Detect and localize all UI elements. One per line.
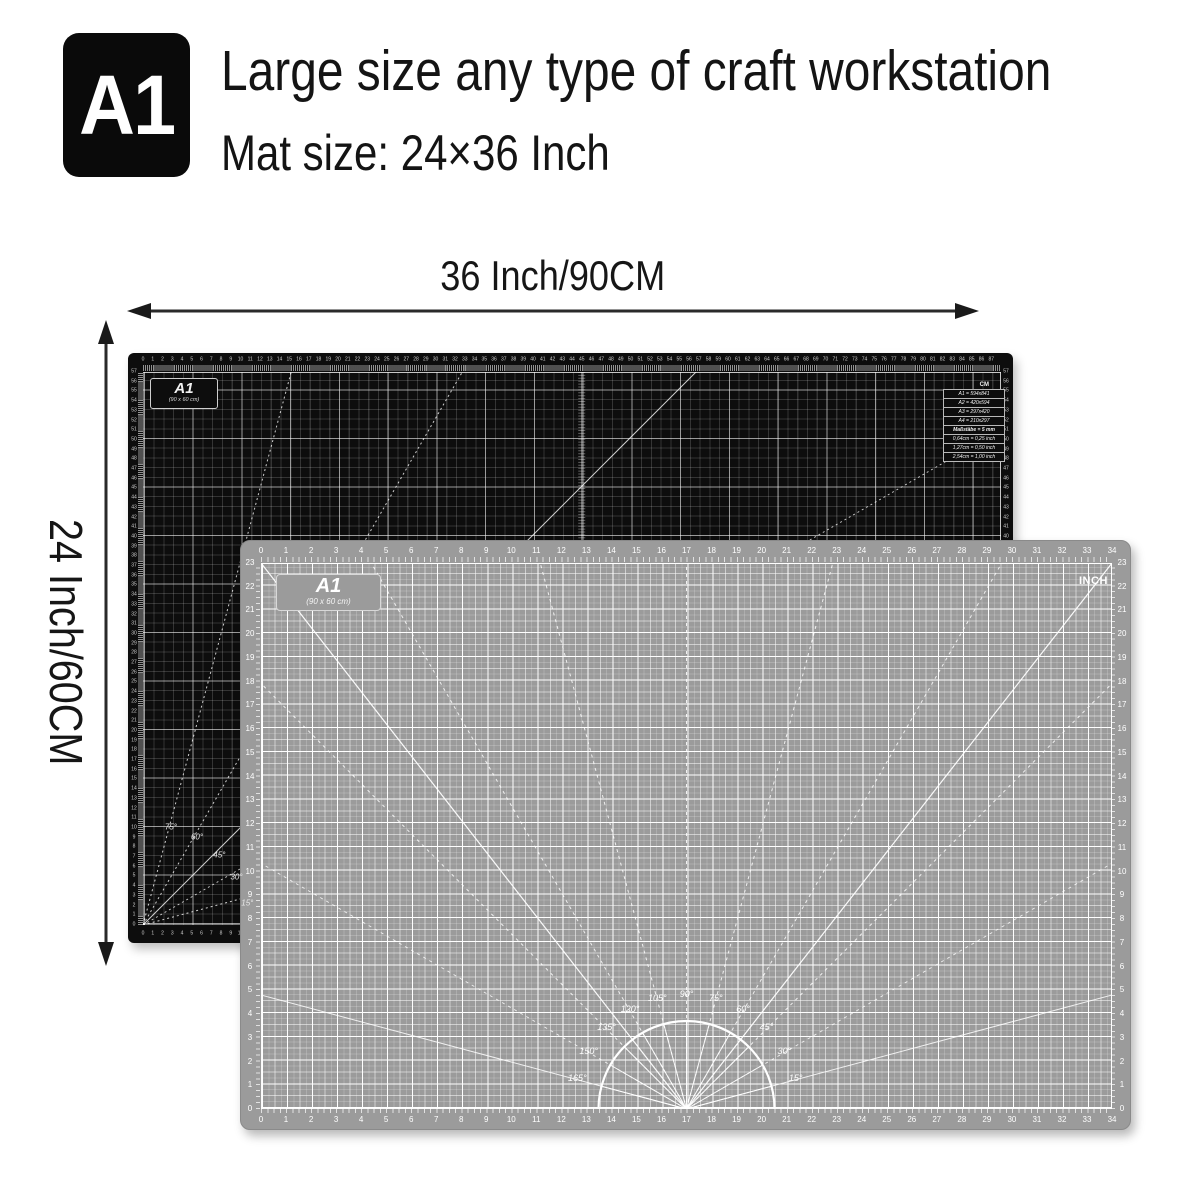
black-mat-top-ruler-number: 44	[569, 358, 575, 363]
gray-mat-right-ruler-number: 15	[1118, 749, 1127, 757]
black-mat-top-ruler-number: 27	[403, 358, 409, 363]
black-mat-top-ruler-number: 62	[745, 358, 751, 363]
black-mat-left-ruler-number: 27	[131, 661, 137, 666]
gray-mat-left-ruler-number: 11	[246, 844, 254, 852]
black-mat-top-ruler-number: 81	[930, 358, 936, 363]
gray-mat-right-ruler-number: 19	[1118, 654, 1127, 662]
gray-mat-left-ruler-number: 1	[248, 1081, 252, 1089]
black-mat-right-ruler-number: 40	[1003, 534, 1009, 539]
product-image: A1 Large size any type of craft workstat…	[0, 0, 1200, 1200]
black-mat-left-ruler-number: 42	[131, 515, 137, 520]
gray-mat-angle-label: 75°	[709, 993, 723, 1003]
black-mat-left-ruler-number: 9	[133, 835, 136, 840]
black-mat-left-ruler-number: 17	[131, 758, 137, 763]
black-mat-top-ruler-number: 5	[190, 358, 193, 363]
black-mat-top-ruler-number: 30	[433, 358, 439, 363]
gray-mat-top-ruler-number: 5	[384, 547, 388, 555]
gray-mat-left-ruler-number: 0	[248, 1105, 252, 1113]
black-mat-left-ruler-number: 28	[131, 651, 137, 656]
black-mat-left-ruler-number: 36	[131, 573, 137, 578]
gray-mat-top-ruler-number: 7	[434, 547, 438, 555]
black-mat-left-ruler-number: 54	[131, 399, 137, 404]
black-mat-bottom-ruler-number: 8	[220, 932, 223, 937]
gray-mat-top-ruler-number: 6	[409, 547, 413, 555]
gray-mat-bottom-ruler-number: 12	[557, 1116, 566, 1124]
gray-mat-right-ruler-number: 14	[1118, 773, 1127, 781]
black-mat-top-ruler-number: 73	[852, 358, 858, 363]
black-mat-top-ruler-number: 80	[920, 358, 926, 363]
gray-mat-left-ruler-number: 23	[246, 559, 255, 567]
black-mat-left-ruler-number: 53	[131, 408, 137, 413]
black-mat-top-ruler-number: 20	[335, 358, 341, 363]
black-mat-left-ruler-number: 24	[131, 690, 137, 695]
black-mat-top-ruler-number: 58	[706, 358, 712, 363]
black-mat-left-ruler-number: 13	[131, 796, 137, 801]
gray-mat-bottom-ruler-number: 19	[732, 1116, 741, 1124]
black-mat-top-ruler-number: 18	[316, 358, 322, 363]
gray-mat-left-ruler-number: 5	[248, 986, 252, 994]
gray-mat-left-ruler-number: 3	[248, 1034, 252, 1042]
gray-mat-bottom-ruler-number: 20	[757, 1116, 766, 1124]
black-mat-bottom-ruler-number: 9	[229, 932, 232, 937]
gray-mat-angle-label: 120°	[621, 1004, 640, 1014]
black-mat-top-ruler-number: 67	[793, 358, 799, 363]
gray-mat-bottom-ruler-number: 22	[807, 1116, 816, 1124]
gray-mat-bottom-ruler-number: 21	[782, 1116, 791, 1124]
black-mat-left-ruler-number: 2	[133, 903, 136, 908]
page-subtitle: Mat size: 24×36 Inch	[221, 124, 610, 182]
gray-mat-right-ruler-number: 6	[1120, 963, 1124, 971]
black-mat-top-ruler-number: 68	[803, 358, 809, 363]
gray-mat-bottom-ruler-number: 33	[1083, 1116, 1092, 1124]
black-mat-left-ruler-number: 50	[131, 437, 137, 442]
black-mat-top-ruler-number: 2	[161, 358, 164, 363]
black-mat-top-ruler-number: 40	[530, 358, 536, 363]
black-mat-top-ruler-number: 33	[462, 358, 468, 363]
gray-mat-top-ruler-number: 15	[632, 547, 641, 555]
black-mat-top-ruler-number: 28	[413, 358, 419, 363]
black-mat-top-ruler-number: 53	[657, 358, 663, 363]
black-mat-left-ruler-number: 22	[131, 709, 137, 714]
black-mat-bottom-ruler-number: 5	[190, 932, 193, 937]
gray-mat-bottom-ruler-number: 8	[459, 1116, 463, 1124]
black-mat-left-ruler-number: 6	[133, 864, 136, 869]
black-mat-left-ruler-number: 26	[131, 670, 137, 675]
black-mat-left-ruler-number: 51	[131, 428, 137, 433]
black-mat-top-ruler-number: 29	[423, 358, 429, 363]
black-mat-top-ruler-number: 31	[442, 358, 448, 363]
black-mat-top-ruler-number: 16	[296, 358, 302, 363]
black-mat-top-ruler-number: 69	[813, 358, 819, 363]
gray-mat-angle-label: 150°	[579, 1046, 598, 1056]
black-mat-top-ruler-number: 74	[862, 358, 868, 363]
black-mat-top-ruler-number: 57	[696, 358, 702, 363]
gray-mat-right-ruler-number: 18	[1118, 678, 1127, 686]
gray-mat-left-ruler-number: 18	[246, 678, 255, 686]
black-mat-top-ruler-number: 59	[715, 358, 721, 363]
black-mat-top-ruler-number: 54	[667, 358, 673, 363]
page-title: Large size any type of craft workstation	[221, 38, 1051, 104]
black-mat-top-ruler-number: 12	[257, 358, 263, 363]
black-mat-top-ruler-number: 4	[181, 358, 184, 363]
gray-mat-bottom-ruler-number: 13	[582, 1116, 591, 1124]
gray-mat-top-ruler-number: 31	[1032, 547, 1041, 555]
black-mat-top-ruler-number: 39	[520, 358, 526, 363]
black-mat-size-label: A1 (90 x 60 cm)	[150, 378, 218, 409]
black-mat-top-ruler-number: 37	[501, 358, 507, 363]
black-mat-left-ruler-number: 21	[131, 719, 137, 724]
gray-mat-bottom-ruler-number: 30	[1007, 1116, 1016, 1124]
black-mat-left-ruler-number: 45	[131, 486, 137, 491]
black-mat-left-ruler-number: 10	[131, 825, 137, 830]
black-mat-left-ruler-number: 33	[131, 602, 137, 607]
black-mat-left-ruler-number: 5	[133, 874, 136, 879]
height-dimension-label: 24 Inch/60CM	[30, 322, 102, 963]
black-mat-bottom-ruler-number: 1	[151, 932, 154, 937]
gray-mat-top-ruler-number: 32	[1058, 547, 1067, 555]
black-mat-top-ruler-number: 77	[891, 358, 897, 363]
black-mat-left-ruler-number: 25	[131, 680, 137, 685]
black-mat-left-ruler-number: 18	[131, 748, 137, 753]
gray-mat-right-ruler-number: 4	[1120, 1010, 1124, 1018]
gray-mat-bottom-ruler-number: 23	[832, 1116, 841, 1124]
gray-mat-bottom-ruler-number: 26	[907, 1116, 916, 1124]
black-mat-top-ruler-number: 87	[988, 358, 994, 363]
black-mat-angle-label: 45°	[213, 850, 225, 859]
black-mat-top-ruler-number: 42	[550, 358, 556, 363]
gray-mat-size-label: A1 (90 x 60 cm)	[276, 574, 381, 611]
gray-mat-bottom-ruler-number: 10	[507, 1116, 516, 1124]
gray-mat-top-ruler-number: 29	[982, 547, 991, 555]
gray-mat-left-ruler-number: 13	[246, 796, 255, 804]
gray-mat-top-ruler-number: 12	[557, 547, 566, 555]
black-mat-top-ruler-number: 61	[735, 358, 741, 363]
black-mat-top-ruler-number: 13	[267, 358, 273, 363]
width-dimension-label: 36 Inch/90CM	[131, 252, 975, 300]
gray-mat-right-ruler-number: 16	[1118, 725, 1127, 733]
black-mat-left-ruler-number: 47	[131, 467, 137, 472]
gray-mat-top-ruler-number: 0	[259, 547, 263, 555]
gray-mat-right-ruler-number: 0	[1120, 1105, 1124, 1113]
gray-mat-left-ruler-number: 6	[248, 963, 252, 971]
gray-mat-bottom-ruler-number: 32	[1058, 1116, 1067, 1124]
black-mat-top-ruler-number: 60	[725, 358, 731, 363]
black-mat-right-ruler-number: 56	[1003, 379, 1009, 384]
gray-mat-bottom-ruler-number: 25	[882, 1116, 891, 1124]
gray-mat-right-ruler-number: 2	[1120, 1058, 1124, 1066]
black-mat-top-ruler-number: 64	[764, 358, 770, 363]
black-mat-angle-label: 60°	[191, 833, 203, 842]
black-mat-left-ruler-number: 57	[131, 370, 137, 375]
gray-mat-angle-label: 105°	[648, 993, 667, 1003]
black-mat-left-ruler-number: 35	[131, 583, 137, 588]
black-mat-left-ruler-number: 4	[133, 884, 136, 889]
black-mat-top-ruler-number: 0	[142, 358, 145, 363]
black-mat-top-ruler-number: 65	[774, 358, 780, 363]
black-mat-bottom-ruler-number: 2	[161, 932, 164, 937]
gray-mat-right-ruler-number: 8	[1120, 915, 1124, 923]
black-mat-top-ruler-number: 48	[608, 358, 614, 363]
black-mat-left-ruler-number: 56	[131, 379, 137, 384]
black-mat-left-ruler-number: 0	[133, 922, 136, 927]
black-mat-top-ruler-number: 19	[325, 358, 331, 363]
black-mat-top-ruler-number: 79	[910, 358, 916, 363]
black-mat-top-ruler-number: 85	[969, 358, 975, 363]
gray-mat-bottom-ruler-number: 24	[857, 1116, 866, 1124]
gray-mat-angle-label: 135°	[597, 1022, 616, 1032]
gray-mat-right-ruler-number: 5	[1120, 986, 1124, 994]
gray-mat-right-ruler-number: 17	[1118, 701, 1127, 709]
black-mat-top-ruler-number: 51	[637, 358, 643, 363]
gray-mat-top-ruler-number: 19	[732, 547, 741, 555]
gray-mat-top-ruler-number: 30	[1007, 547, 1016, 555]
gray-mat-bottom-ruler-number: 2	[309, 1116, 313, 1124]
gray-mat-bottom-ruler-number: 16	[657, 1116, 666, 1124]
gray-mat-bottom-ruler-number: 27	[932, 1116, 941, 1124]
black-mat-left-ruler-number: 31	[131, 622, 137, 627]
black-mat-top-ruler-number: 49	[618, 358, 624, 363]
gray-mat-top-ruler-number: 24	[857, 547, 866, 555]
black-mat-top-ruler-number: 47	[598, 358, 604, 363]
black-mat-right-ruler-number: 57	[1003, 370, 1009, 375]
black-mat-left-ruler-number: 41	[131, 525, 137, 530]
gray-mat-angle-label: 15°	[789, 1073, 803, 1083]
black-mat-top-ruler-number: 3	[171, 358, 174, 363]
black-mat-top-ruler-number: 10	[238, 358, 244, 363]
gray-mat-left-ruler-number: 10	[246, 868, 255, 876]
black-mat-top-ruler-number: 56	[686, 358, 692, 363]
gray-mat-top-ruler-number: 8	[459, 547, 463, 555]
black-mat-left-ruler-number: 23	[131, 699, 137, 704]
gray-mat-left-ruler-number: 20	[246, 630, 255, 638]
gray-mat-left-ruler-number: 12	[246, 820, 255, 828]
black-mat-left-ruler-number: 29	[131, 641, 137, 646]
gray-mat-angle-label: 90°	[680, 989, 694, 999]
black-mat-right-ruler-number: 45	[1003, 486, 1009, 491]
black-mat-angle-label: 15°	[241, 899, 253, 908]
black-mat-top-ruler-number: 23	[364, 358, 370, 363]
gray-mat-top-ruler-number: 26	[907, 547, 916, 555]
black-mat-left-ruler-number: 40	[131, 534, 137, 539]
black-mat-angle-label: 75°	[165, 822, 177, 831]
black-mat-top-ruler-number: 26	[394, 358, 400, 363]
gray-mat-bottom-ruler-number: 1	[284, 1116, 288, 1124]
gray-mat-top-ruler-number: 16	[657, 547, 666, 555]
black-mat-top-ruler-number: 55	[676, 358, 682, 363]
black-mat-left-ruler-number: 1	[133, 913, 136, 918]
gray-mat-bottom-ruler-number: 6	[409, 1116, 413, 1124]
black-mat-left-ruler-number: 32	[131, 612, 137, 617]
black-mat-top-ruler-number: 41	[540, 358, 546, 363]
black-mat-top-ruler-number: 7	[210, 358, 213, 363]
black-mat-right-ruler-number: 46	[1003, 476, 1009, 481]
black-mat-top-ruler-number: 36	[491, 358, 497, 363]
gray-mat-top-ruler-number: 3	[334, 547, 338, 555]
gray-mat-right-ruler-number: 10	[1118, 868, 1127, 876]
gray-mat-bottom-ruler-number: 29	[982, 1116, 991, 1124]
black-mat-left-ruler-number: 39	[131, 544, 137, 549]
black-mat-top-ruler-number: 9	[229, 358, 232, 363]
gray-mat-top-ruler-number: 22	[807, 547, 816, 555]
gray-mat-top-ruler-number: 10	[507, 547, 516, 555]
gray-mat-top-ruler-number: 17	[682, 547, 691, 555]
gray-mat-right-ruler-number: 7	[1120, 939, 1124, 947]
gray-mat-bottom-ruler-number: 14	[607, 1116, 616, 1124]
gray-mat-right-ruler-number: 12	[1118, 820, 1127, 828]
black-mat-top-ruler-number: 75	[871, 358, 877, 363]
black-mat-left-ruler-number: 30	[131, 631, 137, 636]
black-mat-left-ruler-number: 12	[131, 806, 137, 811]
black-mat-top-ruler-number: 21	[345, 358, 351, 363]
gray-mat-left-ruler-number: 15	[246, 749, 255, 757]
gray-mat-top-ruler-number: 25	[882, 547, 891, 555]
black-mat-left-ruler-number: 37	[131, 564, 137, 569]
gray-mat-top-ruler-number: 14	[607, 547, 616, 555]
black-mat-top-ruler-number: 6	[200, 358, 203, 363]
gray-mat-top-ruler-number: 4	[359, 547, 363, 555]
gray-mat-left-ruler-number: 8	[248, 915, 252, 923]
black-mat-left-ruler-number: 52	[131, 418, 137, 423]
gray-mat-bottom-ruler-number: 5	[384, 1116, 388, 1124]
black-mat-bottom-ruler-number: 4	[181, 932, 184, 937]
gray-mat-bottom-ruler-number: 11	[532, 1116, 540, 1124]
black-mat-top-ruler-number: 25	[384, 358, 390, 363]
black-mat-right-ruler-number: 41	[1003, 525, 1009, 530]
black-mat-angle-label: 30°	[230, 873, 242, 882]
gray-mat-right-ruler-number: 23	[1118, 559, 1127, 567]
black-mat-top-ruler-number: 63	[754, 358, 760, 363]
black-mat-top-ruler-number: 52	[647, 358, 653, 363]
black-mat-top-ruler-number: 17	[306, 358, 312, 363]
black-mat-left-ruler-number: 38	[131, 554, 137, 559]
black-mat-left-ruler-number: 46	[131, 476, 137, 481]
black-mat-top-ruler-number: 32	[452, 358, 458, 363]
gray-mat-top-ruler-number: 18	[707, 547, 716, 555]
gray-mat-angle-label: 45°	[760, 1022, 774, 1032]
gray-mat-angle-label: 60°	[736, 1004, 750, 1014]
black-mat-top-ruler-number: 8	[220, 358, 223, 363]
width-dimension-arrow	[125, 296, 981, 326]
black-mat-left-ruler-number: 43	[131, 505, 137, 510]
gray-mat-right-ruler-number: 21	[1118, 606, 1127, 614]
black-mat-top-ruler-number: 22	[355, 358, 361, 363]
black-mat-left-ruler-number: 14	[131, 787, 137, 792]
black-mat-left-ruler-number: 49	[131, 447, 137, 452]
gray-mat-top-ruler-number: 11	[532, 547, 540, 555]
black-mat-bottom-ruler-number: 3	[171, 932, 174, 937]
gray-mat-left-ruler-number: 16	[246, 725, 255, 733]
black-mat-left-ruler-number: 15	[131, 777, 137, 782]
black-mat-bottom-ruler-number: 0	[142, 932, 145, 937]
size-badge: A1	[63, 33, 190, 177]
black-mat-right-ruler-number: 44	[1003, 496, 1009, 501]
gray-mat-top-ruler-number: 1	[284, 547, 288, 555]
black-mat-bottom-ruler-number: 7	[210, 932, 213, 937]
black-mat-left-ruler-number: 16	[131, 767, 137, 772]
black-mat-top-ruler-number: 71	[832, 358, 838, 363]
black-mat-right-ruler-number: 43	[1003, 505, 1009, 510]
gray-mat-bottom-ruler-number: 15	[632, 1116, 641, 1124]
gray-mat-top-ruler-number: 34	[1108, 547, 1117, 555]
gray-mat-right-ruler-number: 1	[1120, 1081, 1124, 1089]
black-mat-top-ruler-number: 70	[823, 358, 829, 363]
gray-mat-bottom-ruler-number: 31	[1032, 1116, 1041, 1124]
gray-cutting-mat: A1 (90 x 60 cm) INCH 0123456789101112131…	[240, 540, 1131, 1130]
gray-mat-right-ruler-number: 11	[1118, 844, 1126, 852]
black-mat-right-ruler-number: 42	[1003, 515, 1009, 520]
gray-mat-bottom-ruler-number: 18	[707, 1116, 716, 1124]
gray-mat-left-ruler-number: 19	[246, 654, 255, 662]
gray-mat-top-ruler-number: 9	[484, 547, 488, 555]
black-mat-top-ruler-number: 76	[881, 358, 887, 363]
black-mat-top-ruler-number: 66	[784, 358, 790, 363]
gray-mat-left-ruler-number: 4	[248, 1010, 252, 1018]
black-mat-left-ruler-number: 19	[131, 738, 137, 743]
gray-mat-left-ruler-number: 17	[246, 701, 255, 709]
gray-mat-top-ruler-number: 33	[1083, 547, 1092, 555]
black-mat-bottom-ruler-number: 6	[200, 932, 203, 937]
black-mat-top-ruler-number: 45	[579, 358, 585, 363]
gray-mat-top-ruler-number: 13	[582, 547, 591, 555]
black-mat-top-ruler-number: 11	[248, 358, 253, 363]
black-mat-top-ruler-number: 83	[949, 358, 955, 363]
size-badge-text: A1	[79, 57, 174, 154]
gray-mat-bottom-ruler-number: 9	[484, 1116, 488, 1124]
gray-mat-left-ruler-number: 7	[248, 939, 252, 947]
gray-mat-bottom-ruler-number: 4	[359, 1116, 363, 1124]
black-mat-top-ruler-number: 72	[842, 358, 848, 363]
black-mat-top-ruler-number: 82	[940, 358, 946, 363]
black-mat-top-ruler-number: 38	[511, 358, 517, 363]
black-mat-left-ruler-number: 11	[131, 816, 136, 821]
black-mat-left-ruler-number: 48	[131, 457, 137, 462]
gray-mat-left-ruler-number: 2	[248, 1058, 252, 1066]
gray-mat-right-ruler-number: 20	[1118, 630, 1127, 638]
black-mat-left-ruler-number: 3	[133, 893, 136, 898]
gray-mat-bottom-ruler-number: 0	[259, 1116, 263, 1124]
black-mat-left-ruler-number: 44	[131, 496, 137, 501]
black-mat-right-ruler-number: 47	[1003, 467, 1009, 472]
black-mat-top-ruler-number: 43	[559, 358, 565, 363]
gray-mat-top-ruler-number: 20	[757, 547, 766, 555]
black-mat-top-ruler-number: 34	[472, 358, 478, 363]
gray-mat-unit-label: INCH	[1079, 575, 1108, 587]
black-mat-top-ruler-number: 1	[151, 358, 154, 363]
gray-mat-bottom-ruler-number: 17	[682, 1116, 691, 1124]
black-mat-left-ruler-number: 20	[131, 728, 137, 733]
gray-mat-guides	[241, 541, 1132, 1131]
gray-mat-angle-label: 165°	[568, 1073, 587, 1083]
gray-mat-top-ruler-number: 23	[832, 547, 841, 555]
gray-mat-left-ruler-number: 14	[246, 773, 255, 781]
black-mat-left-ruler-number: 55	[131, 389, 137, 394]
black-mat-top-ruler-number: 35	[481, 358, 487, 363]
black-mat-top-ruler-number: 46	[589, 358, 595, 363]
gray-mat-top-ruler-number: 21	[782, 547, 791, 555]
gray-mat-left-ruler-number: 21	[246, 606, 255, 614]
gray-mat-bottom-ruler-number: 28	[957, 1116, 966, 1124]
gray-mat-right-ruler-number: 22	[1118, 583, 1127, 591]
black-mat-top-ruler-number: 15	[286, 358, 292, 363]
black-mat-top-ruler-number: 14	[277, 358, 283, 363]
black-mat-top-ruler-number: 24	[374, 358, 380, 363]
black-mat-table-row: 2,54cm = 1,00 inch	[943, 452, 1005, 462]
gray-mat-right-ruler-number: 9	[1120, 891, 1124, 899]
gray-mat-top-ruler-number: 28	[957, 547, 966, 555]
black-mat-conversion-table: A1 = 594x841A2 = 420x594A3 = 297x420A4 =…	[943, 390, 1005, 462]
black-mat-left-ruler-number: 34	[131, 593, 137, 598]
black-mat-left-ruler-number: 7	[133, 855, 136, 860]
